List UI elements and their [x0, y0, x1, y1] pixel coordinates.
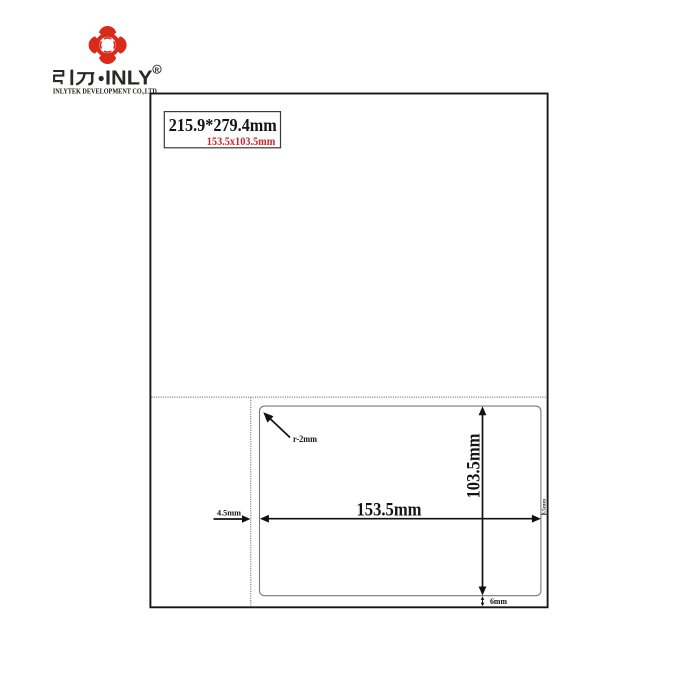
svg-text:215.9*279.4mm: 215.9*279.4mm [169, 115, 277, 135]
svg-text:103.5mm: 103.5mm [463, 433, 484, 498]
svg-text:INLYTEK DEVELOPMENT CO.,LTD: INLYTEK DEVELOPMENT CO.,LTD [53, 86, 157, 95]
svg-text:153.5mm: 153.5mm [357, 500, 422, 521]
svg-text:6mm: 6mm [490, 597, 507, 606]
svg-text:R: R [155, 67, 160, 74]
svg-text:3.5mm: 3.5mm [542, 499, 548, 516]
svg-text:153.5x103.5mm: 153.5x103.5mm [207, 134, 276, 148]
svg-text:4.5mm: 4.5mm [217, 507, 242, 517]
svg-text:r-2mm: r-2mm [293, 435, 317, 445]
